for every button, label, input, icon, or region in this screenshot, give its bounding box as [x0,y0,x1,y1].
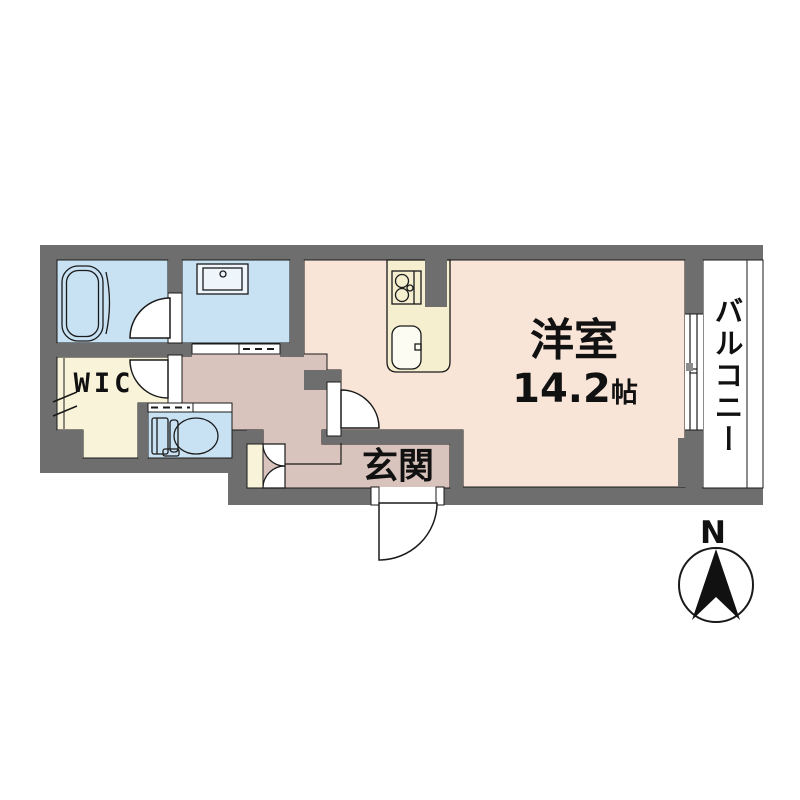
wall-balcony-lower-step [678,438,703,487]
living-room-label: 洋室 [530,315,618,366]
window-opening [685,314,703,430]
wall-top [40,245,763,260]
window-latch [686,363,693,371]
floorplan-svg: 洋室 14.2帖 玄関 WIC バルコニー N [0,0,800,800]
entry-jamb-left [371,487,379,505]
wall-left [40,245,57,473]
balcony-window [685,314,703,430]
wall-genkan-top [322,430,453,444]
wall-bath-wash-upper [168,260,182,297]
compass: N [679,515,753,622]
living-room-size-value: 14.2 [512,366,611,412]
wall-balcony-upper [685,260,703,314]
living-doorway [327,382,341,436]
sink-icon [392,326,421,369]
entrance-label: 玄関 [362,446,434,487]
living-room-size-unit: 帖 [611,378,638,409]
wall-bottom [228,487,763,505]
wall-toilet-left [138,403,148,458]
wall-wic-step [57,430,83,458]
entry-door-arc [379,503,437,560]
wall-washroom-right [290,260,304,357]
wic-doorway [168,355,182,403]
wic-label: WIC [74,368,135,399]
floorplan-page: 洋室 14.2帖 玄関 WIC バルコニー N [0,0,800,800]
compass-north-label: N [700,515,726,551]
wall-bottom-left [40,458,228,473]
wall-kitchen-stub-overlay [425,245,447,307]
wall-shoe-cabinet-top [247,430,263,444]
shoe-cabinet [247,444,263,488]
balcony-label: バルコニー [710,296,744,456]
wall-genkan-right [450,430,463,488]
washroom-sliding-door [192,344,280,354]
